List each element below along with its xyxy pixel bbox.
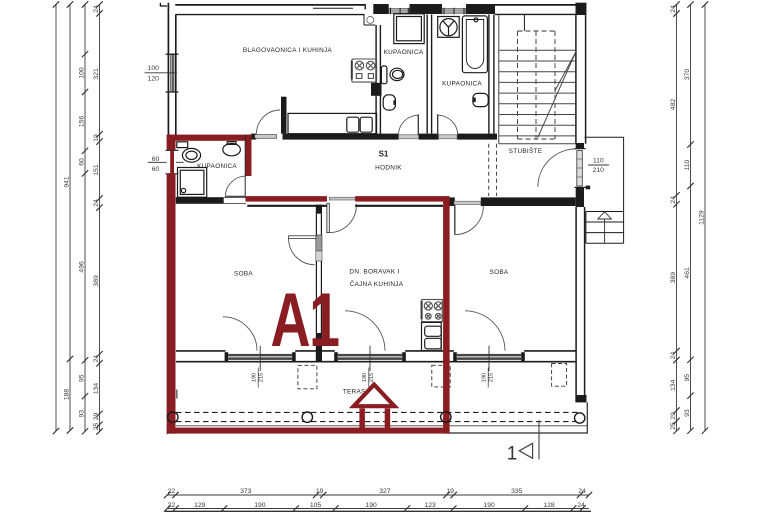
svg-text:190: 190 — [362, 373, 368, 382]
svg-text:129: 129 — [194, 502, 206, 509]
svg-text:373: 373 — [240, 488, 252, 495]
svg-text:KUPAONICA: KUPAONICA — [442, 80, 482, 87]
svg-text:190: 190 — [365, 502, 377, 509]
svg-text:110: 110 — [593, 158, 604, 165]
svg-text:1129: 1129 — [699, 210, 706, 225]
svg-text:215: 215 — [488, 373, 494, 382]
svg-text:25: 25 — [670, 422, 677, 430]
svg-text:KUPAONICA: KUPAONICA — [197, 163, 237, 170]
svg-text:A1: A1 — [271, 279, 340, 364]
svg-text:100: 100 — [148, 65, 160, 72]
svg-text:335: 335 — [511, 488, 523, 495]
svg-text:19: 19 — [93, 134, 100, 142]
svg-text:STUBIŠTE: STUBIŠTE — [509, 146, 543, 155]
svg-text:SOBA: SOBA — [234, 271, 253, 278]
svg-text:24: 24 — [578, 488, 586, 495]
svg-text:190: 190 — [483, 502, 495, 509]
svg-text:95: 95 — [79, 374, 86, 382]
svg-text:24: 24 — [670, 352, 677, 360]
svg-text:KUPAONICA: KUPAONICA — [384, 49, 424, 56]
svg-text:ČAJNA KUHINJA: ČAJNA KUHINJA — [350, 279, 404, 288]
svg-text:215: 215 — [258, 373, 264, 382]
svg-text:389: 389 — [670, 272, 677, 284]
svg-text:29: 29 — [670, 412, 677, 420]
svg-text:24: 24 — [93, 199, 100, 207]
svg-text:110: 110 — [684, 160, 691, 171]
svg-text:134: 134 — [670, 379, 677, 391]
svg-text:100: 100 — [79, 67, 86, 79]
svg-text:482: 482 — [670, 99, 677, 111]
svg-text:25: 25 — [93, 423, 100, 431]
svg-text:327: 327 — [379, 488, 391, 495]
svg-text:389: 389 — [93, 275, 100, 287]
svg-text:22: 22 — [168, 502, 176, 509]
svg-text:95: 95 — [684, 374, 691, 382]
svg-text:941: 941 — [64, 176, 71, 188]
svg-text:190: 190 — [254, 502, 266, 509]
svg-text:123: 123 — [424, 502, 436, 509]
svg-text:134: 134 — [93, 383, 100, 395]
svg-text:S1: S1 — [379, 150, 389, 159]
svg-text:29: 29 — [93, 413, 100, 421]
svg-text:24: 24 — [670, 5, 677, 13]
svg-text:1: 1 — [507, 443, 518, 464]
svg-text:210: 210 — [593, 167, 605, 174]
svg-text:461: 461 — [684, 267, 691, 279]
svg-text:188: 188 — [64, 389, 71, 401]
svg-text:HODNIK: HODNIK — [375, 165, 402, 172]
svg-text:190: 190 — [482, 373, 488, 382]
svg-text:24: 24 — [93, 5, 100, 13]
svg-text:93: 93 — [684, 409, 691, 417]
svg-text:93: 93 — [79, 410, 86, 418]
svg-text:105: 105 — [310, 502, 322, 509]
svg-text:190: 190 — [252, 373, 258, 382]
svg-text:22: 22 — [168, 488, 176, 495]
svg-text:SOBA: SOBA — [490, 269, 509, 276]
svg-text:19: 19 — [316, 488, 324, 495]
svg-text:370: 370 — [684, 69, 691, 81]
svg-text:24: 24 — [93, 355, 100, 363]
svg-text:215: 215 — [369, 373, 375, 382]
svg-text:321: 321 — [93, 68, 100, 80]
svg-text:24: 24 — [670, 196, 677, 204]
svg-text:60: 60 — [79, 158, 86, 166]
svg-text:19: 19 — [446, 488, 454, 495]
svg-text:496: 496 — [79, 261, 86, 273]
svg-text:156: 156 — [79, 116, 86, 128]
svg-text:120: 120 — [148, 76, 160, 83]
svg-text:24: 24 — [577, 502, 585, 509]
svg-text:BLAGOVAONICA I KUHINJA: BLAGOVAONICA I KUHINJA — [243, 47, 333, 54]
svg-text:DN. BORAVAK I: DN. BORAVAK I — [349, 269, 399, 276]
svg-text:60: 60 — [152, 166, 160, 173]
svg-text:128: 128 — [543, 502, 555, 509]
svg-text:151: 151 — [93, 164, 100, 176]
svg-text:60: 60 — [152, 156, 160, 163]
